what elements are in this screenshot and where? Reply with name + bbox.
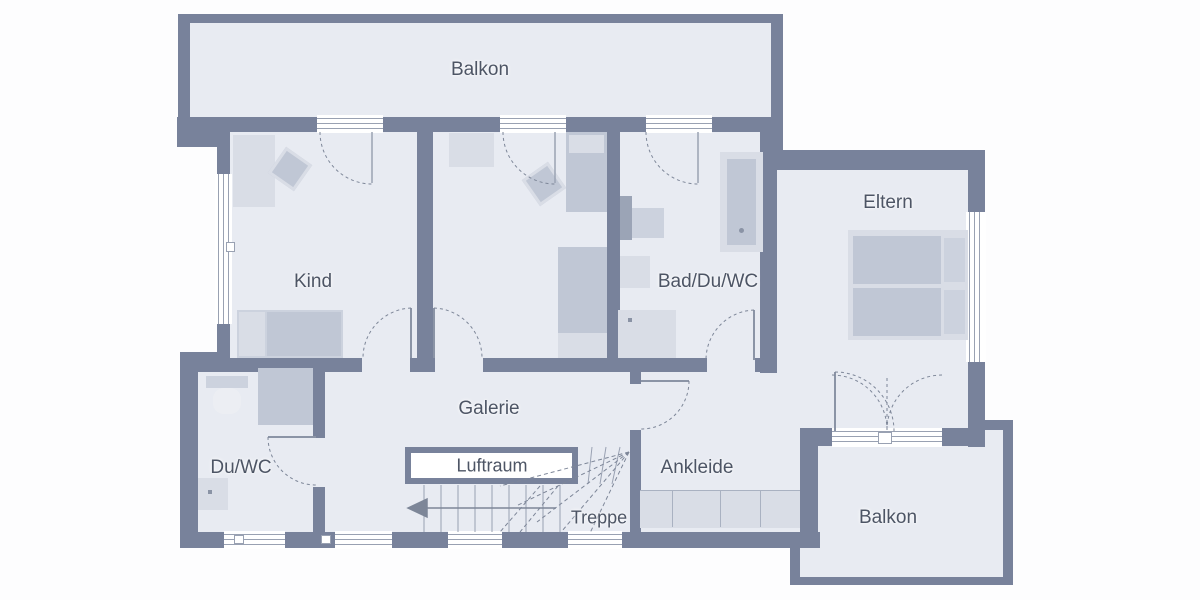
balcony-bottom-floor bbox=[800, 430, 1005, 577]
room-label-bad: Bad/Du/WC bbox=[658, 271, 758, 293]
window-handle bbox=[226, 242, 235, 252]
window-handle bbox=[234, 535, 244, 544]
toilet bbox=[620, 256, 650, 288]
wall-segment bbox=[770, 150, 985, 170]
bathtub-drain bbox=[739, 228, 744, 233]
shower bbox=[258, 368, 313, 425]
room-label-luftraum: Luftraum bbox=[456, 456, 527, 477]
room-label-ankleide: Ankleide bbox=[661, 457, 734, 479]
door-handle bbox=[878, 432, 892, 444]
wall-segment bbox=[800, 430, 818, 548]
room-label-galerie: Galerie bbox=[458, 398, 519, 420]
room-label-kind: Kind bbox=[294, 271, 332, 293]
closet-divider bbox=[720, 490, 721, 527]
vanity-counter bbox=[620, 196, 632, 240]
wall-segment bbox=[755, 358, 777, 372]
room-label-treppe: Treppe bbox=[571, 508, 627, 529]
washbasin bbox=[198, 478, 228, 510]
bed-mattress bbox=[853, 236, 941, 284]
washbasin-drain bbox=[208, 490, 212, 494]
bed-mattress bbox=[267, 312, 341, 356]
window bbox=[568, 531, 622, 549]
window bbox=[500, 115, 566, 133]
wardrobe bbox=[558, 247, 607, 333]
wall-segment bbox=[1003, 420, 1013, 585]
toilet bbox=[213, 388, 241, 414]
wall-segment bbox=[178, 14, 190, 131]
bed-pillow bbox=[944, 238, 965, 282]
wall-segment bbox=[630, 370, 641, 384]
room-label-balkon-bottom: Balkon bbox=[859, 507, 917, 529]
desk bbox=[449, 133, 494, 167]
shower bbox=[618, 310, 676, 358]
wall-segment bbox=[790, 577, 1013, 585]
bed-pillow bbox=[569, 135, 604, 153]
wall-segment bbox=[417, 132, 433, 370]
wall-segment bbox=[313, 370, 325, 438]
wall-segment bbox=[178, 14, 783, 23]
wall-segment bbox=[790, 543, 800, 585]
window bbox=[335, 531, 392, 549]
bed-pillow bbox=[944, 290, 965, 334]
room-label-balkon-top: Balkon bbox=[451, 59, 509, 81]
room-label-du-wc: Du/WC bbox=[210, 457, 271, 479]
floor-plan: Balkon Kind Bad/Du/WC Eltern Galerie Du/… bbox=[0, 0, 1200, 600]
bed-mattress bbox=[853, 288, 941, 336]
window bbox=[317, 115, 383, 133]
wall-segment bbox=[313, 487, 325, 533]
wardrobe bbox=[558, 333, 607, 358]
wall-segment bbox=[771, 14, 783, 131]
wall-segment bbox=[180, 352, 198, 548]
closet-divider bbox=[760, 490, 761, 527]
shower-drain bbox=[628, 318, 632, 322]
bed-pillow bbox=[239, 312, 265, 356]
window bbox=[646, 115, 712, 133]
wall-segment bbox=[483, 358, 707, 372]
window bbox=[966, 212, 986, 362]
toilet-tank bbox=[206, 376, 248, 388]
washbasin bbox=[632, 208, 664, 238]
room-label-eltern: Eltern bbox=[863, 192, 913, 214]
wall-segment bbox=[410, 358, 435, 372]
wall-segment bbox=[770, 130, 783, 152]
wall-segment bbox=[942, 428, 985, 446]
wall-segment bbox=[800, 428, 832, 446]
window bbox=[448, 531, 502, 549]
closet-divider bbox=[672, 490, 673, 527]
window-handle bbox=[321, 535, 331, 544]
